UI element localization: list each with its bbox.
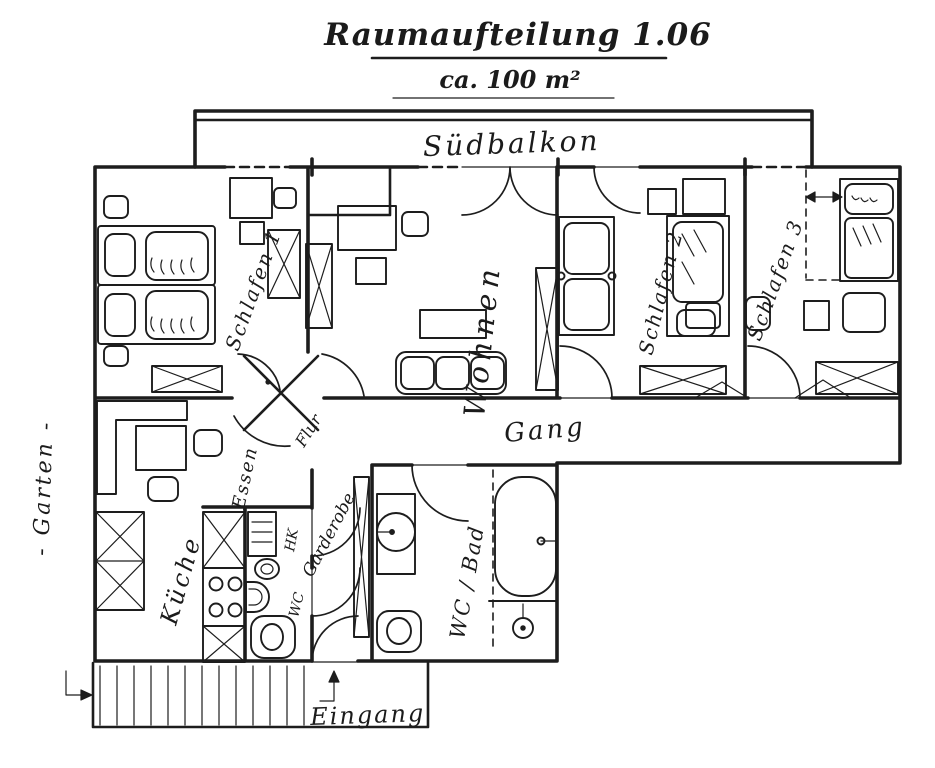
living-room-notch-wall [308,167,390,215]
deck-hatching [100,666,304,725]
room-wc: HK WC [246,512,308,658]
nightstand-icon [104,346,128,366]
stool-icon [804,301,829,330]
room-bathroom: WC / Bad [377,470,556,652]
room-kitchen: Küche [96,512,245,662]
stool-icon [648,189,676,214]
wardrobe-icon [816,362,898,394]
room-label-balcony: Südbalkon [422,124,601,163]
cabinet-icon [536,268,558,390]
chair-icon [274,188,296,208]
room-label-entrance: Eingang [309,699,426,731]
room-label-living: Wohnen [457,262,507,419]
shower-icon [489,601,556,638]
double-bed-icon [558,217,616,335]
washbasin-icon [255,559,279,579]
room-label-bedroom3: Schlafen 3 [742,216,808,344]
sliding-direction-arrow-icon [806,192,842,202]
dining-table-icon [136,426,186,470]
toilet-icon [377,611,421,652]
page-subtitle: ca. 100 m² [439,65,580,94]
nightstand-icon [104,196,128,218]
chair-icon [402,212,428,236]
table-icon [683,179,725,214]
garden-side: - Garten - [29,419,92,700]
radiator-label: HK [282,526,302,554]
entrance-area: Eingang [93,663,428,731]
bed-icon [840,179,898,281]
vestibule-center-dot [265,379,270,384]
room-label-cloakroom: Garderobe [299,490,360,581]
pantry-cupboard-icon [96,512,144,610]
sink-icon [246,582,269,612]
room-dining: Essen [97,401,262,512]
area-label-garden: - Garten - [29,419,59,556]
stove-icon [210,578,242,617]
room-label-bedroom1: Schlafen 1 [220,226,286,354]
room-label-hall: Flur [291,410,326,451]
stool-icon [148,477,178,501]
twin-beds-icon [98,226,215,344]
floor-plan-drawing: Raumaufteilung 1.06 ca. 100 m² Südbalkon [0,0,935,768]
room-label-corridor: Gang [503,412,587,449]
dresser-icon [152,366,222,392]
bathtub-icon [495,477,556,596]
partition-dashes [806,170,842,280]
room-label-wc: WC [286,590,308,619]
room-label-dining: Essen [228,444,262,512]
room-living: Wohnen [306,206,558,419]
washbasin-icon [377,494,415,574]
radiator-icon [248,512,276,556]
table-icon [843,293,885,332]
room-label-bedroom2: Schlafen 2 [634,228,688,357]
entrance-arrow-icon [320,671,339,701]
room-label-bathroom: WC / Bad [445,523,489,641]
room-balcony: Südbalkon [195,111,812,167]
room-bedroom1: Schlafen 1 [98,178,300,392]
table-icon [230,178,272,218]
shelf-icon [306,244,332,328]
floor-plan-sheet: Raumaufteilung 1.06 ca. 100 m² Südbalkon [0,0,935,768]
side-table-icon [356,258,386,284]
garden-entry-arrow-icon [66,671,92,700]
room-label-kitchen: Küche [155,532,207,628]
wardrobe-icon [640,366,726,394]
page-title: Raumaufteilung 1.06 [323,17,712,53]
room-bedroom3: Schlafen 3 [742,170,898,394]
desk-icon [338,206,396,250]
corner-bench-icon [97,401,187,494]
toilet-icon [251,616,295,658]
stool-icon [194,430,222,456]
room-bedroom2: Schlafen 2 [558,179,730,394]
